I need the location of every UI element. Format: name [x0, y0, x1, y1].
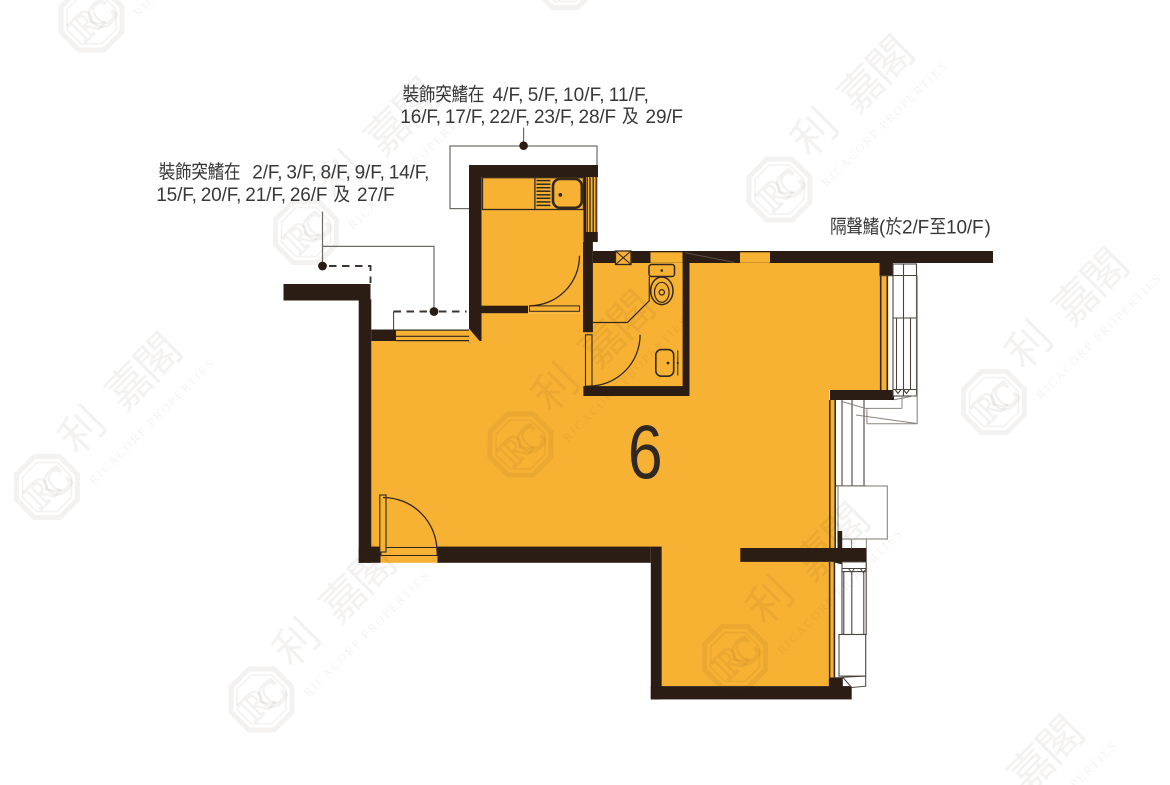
svg-text:): ) [985, 217, 991, 238]
svg-text:(: ( [879, 217, 886, 238]
svg-text:16/F, 17/F, 22/F, 23/F, 28/F: 16/F, 17/F, 22/F, 23/F, 28/F [400, 107, 616, 128]
svg-text:15/F, 20/F, 21/F, 26/F: 15/F, 20/F, 21/F, 26/F [156, 185, 327, 206]
svg-text:27/F: 27/F [357, 185, 395, 206]
svg-text:2/F, 3/F, 8/F, 9/F, 14/F,: 2/F, 3/F, 8/F, 9/F, 14/F, [252, 163, 429, 184]
svg-text:6: 6 [628, 410, 663, 495]
svg-text:2/F: 2/F [902, 217, 929, 238]
svg-text:10/F: 10/F [946, 217, 984, 238]
svg-text:29/F: 29/F [646, 107, 684, 128]
svg-text:4/F, 5/F, 10/F, 11/F,: 4/F, 5/F, 10/F, 11/F, [493, 85, 650, 106]
